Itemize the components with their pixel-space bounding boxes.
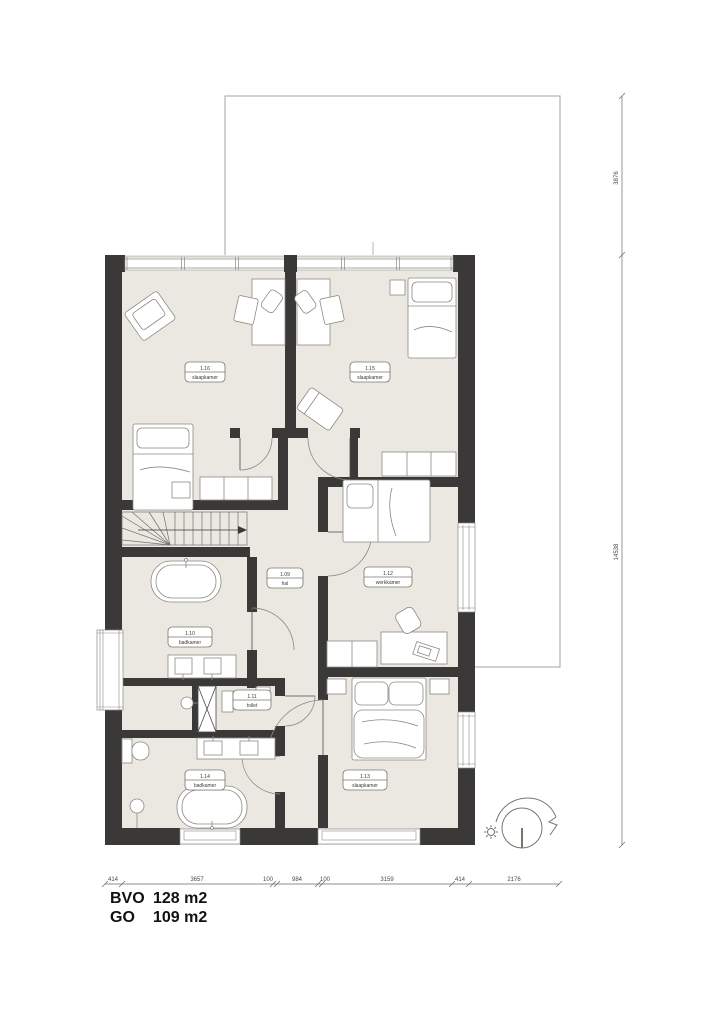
dimension-line-bottom: [102, 881, 562, 887]
bottom-window-badkamer: [180, 829, 240, 844]
dim-bottom-4: 984: [292, 877, 303, 883]
bed-115: [408, 278, 456, 358]
dim-right-upper: 3876: [614, 171, 620, 185]
room-number: 1.14: [200, 774, 210, 780]
cabinet-116: [172, 482, 190, 498]
sun-arc-arrow: [549, 817, 557, 835]
room-number: 1.10: [185, 631, 195, 637]
nightstand-113-left: [327, 679, 346, 694]
wardrobe-115: [382, 452, 456, 476]
bottom-window-slaapkamer: [318, 829, 420, 844]
room-label-114: 1.14 badkamer: [185, 770, 225, 790]
room-label-115: 1.15 slaapkamer: [350, 362, 390, 382]
room-name: werkkamer: [376, 580, 401, 586]
room-number: 1.12: [383, 571, 393, 577]
room-number: 1.15: [365, 366, 375, 372]
dimension-line-right: [619, 93, 625, 848]
bvo-value: 128 m2: [153, 890, 207, 907]
dim-right-lower: 14538: [614, 543, 620, 560]
room-name: slaapkamer: [352, 783, 378, 789]
room-number: 1.16: [200, 366, 210, 372]
room-label-110: 1.10 badkamer: [168, 627, 212, 647]
room-label-109: 1.09 hal: [267, 568, 303, 588]
go-value: 109 m2: [153, 909, 207, 926]
bed-113: [352, 678, 426, 760]
room-label-113: 1.13 slaapkamer: [343, 770, 387, 790]
shaft: [198, 686, 216, 732]
room-number: 1.13: [360, 774, 370, 780]
floor-plan-page: 3876 14538 414 3657 100 984 100 3159 414…: [0, 0, 724, 1024]
go-label: GO: [110, 909, 135, 926]
dim-bottom-2: 3657: [190, 877, 204, 883]
right-window-werkkamer: [458, 523, 475, 612]
sun-path-symbol: [484, 798, 557, 848]
area-summary: BVO 128 m2 GO 109 m2: [110, 890, 207, 926]
wardrobe-116: [200, 477, 272, 500]
dim-bottom-6: 3159: [380, 877, 394, 883]
dim-bottom-8: 2176: [507, 877, 521, 883]
room-number: 1.09: [280, 572, 290, 578]
room-label-111: 1.11 toilet: [233, 690, 271, 710]
room-label-116: 1.16 slaapkamer: [185, 362, 225, 382]
floor-plan-drawing: 3876 14538 414 3657 100 984 100 3159 414…: [0, 0, 724, 1024]
vanity-110: [168, 655, 236, 680]
sun-icon: [484, 825, 498, 839]
room-name: hal: [282, 581, 289, 587]
bathtub-110: [151, 558, 221, 602]
right-window-slaapkamer: [458, 712, 475, 768]
room-label-112: 1.12 werkkamer: [364, 567, 412, 587]
bvo-label: BVO: [110, 890, 145, 907]
left-window: [97, 630, 123, 710]
dim-bottom-3: 100: [263, 877, 274, 883]
bathtub-114: [177, 786, 247, 830]
nightstand-113-right: [430, 679, 449, 694]
top-window-band: [125, 255, 453, 272]
room-name: badkamer: [194, 783, 217, 789]
bed-112: [343, 480, 430, 542]
nightstand-115: [390, 280, 405, 295]
room-name: badkamer: [179, 640, 202, 646]
room-name: slaapkamer: [357, 375, 383, 381]
room-number: 1.11: [247, 694, 257, 700]
dim-bottom-1: 414: [108, 877, 119, 883]
vanity-114: [197, 736, 275, 759]
room-name: slaapkamer: [192, 375, 218, 381]
room-name: toilet: [247, 703, 258, 709]
dimension-values-bottom: 414 3657 100 984 100 3159 414 2176: [108, 877, 521, 883]
dim-bottom-7: 414: [455, 877, 466, 883]
dim-bottom-5: 100: [320, 877, 331, 883]
